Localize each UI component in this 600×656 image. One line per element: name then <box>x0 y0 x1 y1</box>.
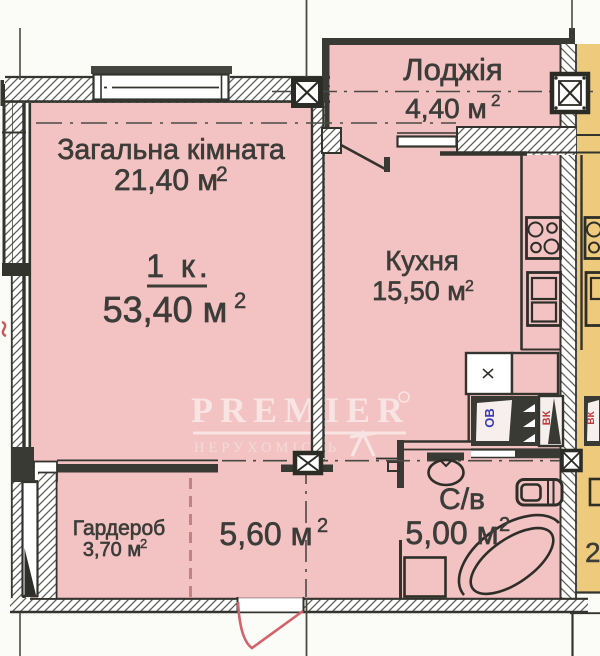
svg-text:ВК: ВК <box>586 410 597 424</box>
svg-text:Лоджія: Лоджія <box>403 52 502 87</box>
svg-text:1 к.: 1 к. <box>146 248 212 284</box>
svg-text:3,70 м: 3,70 м <box>83 539 141 561</box>
svg-text:PREMIER: PREMIER <box>191 390 410 430</box>
svg-text:5,60 м: 5,60 м <box>219 516 312 552</box>
svg-text:2: 2 <box>491 91 500 110</box>
svg-text:21,40 м: 21,40 м <box>114 164 218 197</box>
svg-text:2: 2 <box>216 163 228 186</box>
svg-text:Загальна кімната: Загальна кімната <box>57 134 285 166</box>
svg-text:2: 2 <box>465 278 474 295</box>
svg-text:Гардероб: Гардероб <box>73 517 165 540</box>
svg-text:С/в: С/в <box>439 483 485 516</box>
svg-text:ОВ: ОВ <box>482 408 497 428</box>
svg-text:ВК: ВК <box>541 410 553 425</box>
svg-text:2: 2 <box>585 537 600 568</box>
svg-text:15,50 м: 15,50 м <box>372 276 466 306</box>
svg-text:2: 2 <box>234 288 246 313</box>
svg-text:4,40 м: 4,40 м <box>405 93 487 124</box>
svg-text:2: 2 <box>317 515 328 537</box>
svg-text:2: 2 <box>140 536 147 551</box>
svg-text:53,40 м: 53,40 м <box>103 289 228 330</box>
svg-text:2: 2 <box>499 514 510 536</box>
svg-text:Кухня: Кухня <box>385 245 459 276</box>
svg-text:5,00 м: 5,00 м <box>405 515 498 551</box>
